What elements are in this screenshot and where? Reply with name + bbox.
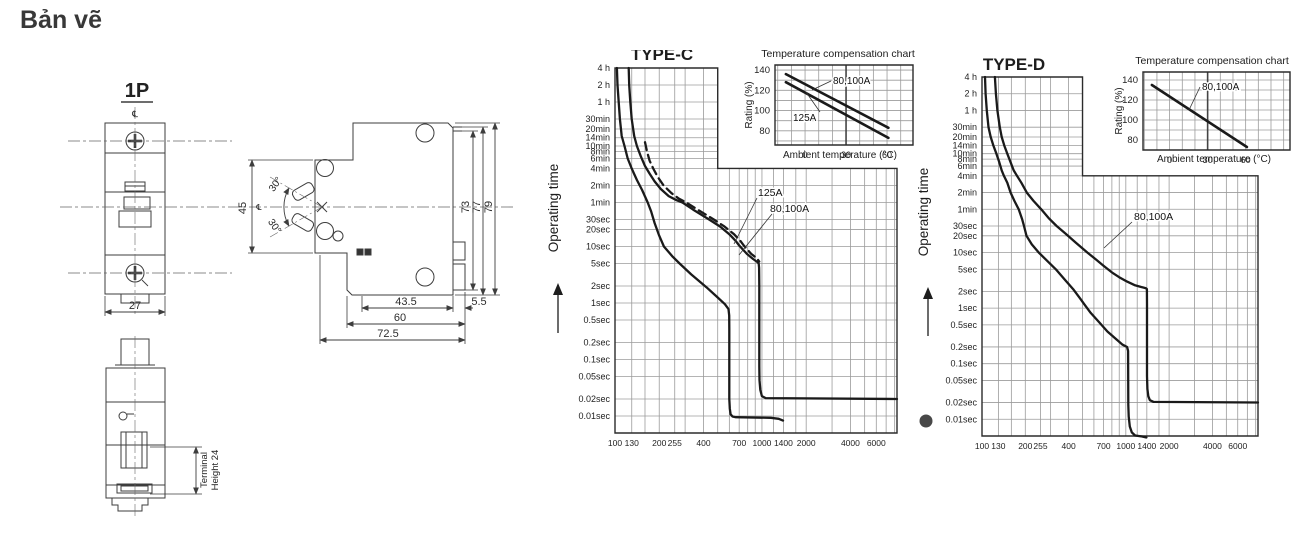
svg-text:200: 200: [652, 438, 666, 448]
dim-width-27: 27: [129, 300, 141, 312]
svg-text:1min: 1min: [957, 204, 977, 214]
type-c-inset-y-label: Rating (%): [744, 81, 755, 128]
drawing-page: Bản vẽ 100130200255400700100014002000400…: [0, 0, 1301, 537]
chart-border: [615, 68, 897, 433]
dim-angle-upper: 30°: [267, 175, 285, 194]
svg-text:4000: 4000: [1203, 441, 1222, 451]
svg-text:0.01sec: 0.01sec: [945, 414, 977, 424]
centerline-symbol-side: ℄: [255, 203, 262, 212]
terminal-height-note-line2: Height 24: [210, 450, 221, 491]
svg-text:0.05sec: 0.05sec: [945, 375, 977, 385]
svg-text:5sec: 5sec: [958, 264, 978, 274]
svg-text:1 h: 1 h: [964, 105, 977, 115]
front-view-drawing: 1P ℄ 27: [60, 80, 516, 316]
svg-text:1000: 1000: [752, 438, 771, 448]
svg-text:10sec: 10sec: [953, 248, 978, 258]
svg-text:2sec: 2sec: [958, 286, 978, 296]
svg-text:0.02sec: 0.02sec: [578, 394, 610, 404]
list-bullet: [920, 415, 933, 428]
svg-text:255: 255: [668, 438, 682, 448]
svg-text:2 h: 2 h: [964, 89, 977, 99]
svg-text:4 h: 4 h: [964, 72, 977, 82]
svg-text:0.1sec: 0.1sec: [950, 359, 977, 369]
inset-d-label-80-100a: 80,100A: [1202, 82, 1240, 93]
svg-text:2000: 2000: [797, 438, 816, 448]
svg-text:2min: 2min: [590, 180, 610, 190]
svg-text:30min: 30min: [585, 114, 610, 124]
dim-height-45: 45: [237, 202, 249, 214]
svg-text:100: 100: [608, 438, 622, 448]
type-d-y-axis-label: Operating time: [916, 168, 931, 257]
type-d-inset-y-label: Rating (%): [1114, 87, 1125, 134]
svg-text:20sec: 20sec: [586, 224, 611, 234]
svg-text:1 h: 1 h: [597, 97, 610, 107]
type-d-inset-title: Temperature compensation chart: [1135, 55, 1289, 67]
type-d-inset-x-label: Ambient temperature (°C): [1157, 154, 1271, 165]
svg-text:4 h: 4 h: [597, 63, 610, 73]
dim-43-5: 43.5: [395, 296, 416, 308]
curve-label-80-100a: 80,100A: [770, 203, 809, 215]
inset-label-125a: 125A: [793, 113, 817, 124]
svg-text:6min: 6min: [957, 161, 977, 171]
svg-text:0.1sec: 0.1sec: [583, 354, 610, 364]
svg-text:100: 100: [754, 106, 770, 117]
svg-text:100: 100: [975, 441, 989, 451]
svg-text:400: 400: [696, 438, 710, 448]
svg-text:0.05sec: 0.05sec: [578, 371, 610, 381]
svg-text:2min: 2min: [957, 188, 977, 198]
dim-60: 60: [394, 312, 406, 324]
svg-text:0.01sec: 0.01sec: [578, 411, 610, 421]
drawing-canvas: 100130200255400700100014002000400060004 …: [0, 0, 1301, 537]
svg-text:0.2sec: 0.2sec: [583, 337, 610, 347]
svg-text:20sec: 20sec: [953, 231, 978, 241]
terminal-height-note-line1: Terminal: [199, 452, 210, 488]
dim-depth-77: 77: [471, 201, 483, 213]
svg-text:4min: 4min: [590, 163, 610, 173]
side-view-drawing: 30° 30° ℄ 45 73 77 79 43.: [237, 123, 500, 344]
svg-text:2 h: 2 h: [597, 80, 610, 90]
tick-labels: 100130200255400700100014002000400060004 …: [945, 72, 1247, 451]
svg-text:700: 700: [732, 438, 746, 448]
svg-text:80: 80: [1127, 135, 1138, 146]
svg-text:1400: 1400: [1137, 441, 1156, 451]
trip-curve: [629, 68, 897, 399]
svg-text:6000: 6000: [1228, 441, 1247, 451]
svg-text:130: 130: [625, 438, 639, 448]
svg-text:1000: 1000: [1116, 441, 1135, 451]
svg-text:30min: 30min: [952, 122, 977, 132]
chart-grid: [615, 68, 897, 433]
svg-text:4000: 4000: [841, 438, 860, 448]
svg-text:255: 255: [1033, 441, 1047, 451]
svg-text:1sec: 1sec: [958, 303, 978, 313]
svg-text:2000: 2000: [1160, 441, 1179, 451]
dim-angle-lower: 30°: [265, 217, 283, 236]
type-c-y-axis-label: Operating time: [546, 164, 561, 253]
inset-label-80-100a: 80,100A: [833, 76, 871, 87]
svg-text:30sec: 30sec: [586, 215, 611, 225]
svg-text:80: 80: [759, 126, 770, 137]
dim-5-5: 5.5: [471, 296, 486, 308]
centerline-symbol: ℄: [131, 109, 138, 119]
svg-text:0.2sec: 0.2sec: [950, 342, 977, 352]
svg-text:6min: 6min: [590, 154, 610, 164]
svg-text:130: 130: [991, 441, 1005, 451]
type-c-inset-x-label: Ambient temperature (°C): [783, 150, 897, 161]
svg-text:400: 400: [1061, 441, 1075, 451]
svg-text:140: 140: [754, 65, 770, 76]
dim-depth-79: 79: [483, 201, 495, 213]
svg-text:6000: 6000: [867, 438, 886, 448]
svg-text:5sec: 5sec: [591, 258, 611, 268]
type-d-title: TYPE-D: [983, 55, 1045, 74]
type-d-trip-curve-chart: 100130200255400700100014002000400060004 …: [945, 72, 1258, 451]
front-view-label: 1P: [125, 80, 149, 102]
svg-text:700: 700: [1096, 441, 1110, 451]
svg-text:200: 200: [1018, 441, 1032, 451]
trip-curve: [617, 68, 783, 421]
crop-mask: [545, 18, 917, 50]
svg-text:0.5sec: 0.5sec: [950, 320, 977, 330]
svg-text:10sec: 10sec: [586, 241, 611, 251]
svg-text:2sec: 2sec: [591, 281, 611, 291]
curve-label-d-80-100a: 80,100A: [1134, 211, 1173, 223]
bottom-view-drawing: Terminal Height 24: [106, 336, 221, 516]
svg-text:30sec: 30sec: [953, 221, 978, 231]
svg-text:1min: 1min: [590, 197, 610, 207]
svg-text:0.02sec: 0.02sec: [945, 398, 977, 408]
svg-text:4min: 4min: [957, 171, 977, 181]
dim-72-5: 72.5: [377, 328, 398, 340]
svg-text:1400: 1400: [774, 438, 793, 448]
svg-text:120: 120: [754, 85, 770, 96]
svg-text:1sec: 1sec: [591, 298, 611, 308]
curve-label-125a: 125A: [758, 187, 783, 199]
svg-text:140: 140: [1122, 75, 1138, 86]
svg-text:0.5sec: 0.5sec: [583, 315, 610, 325]
